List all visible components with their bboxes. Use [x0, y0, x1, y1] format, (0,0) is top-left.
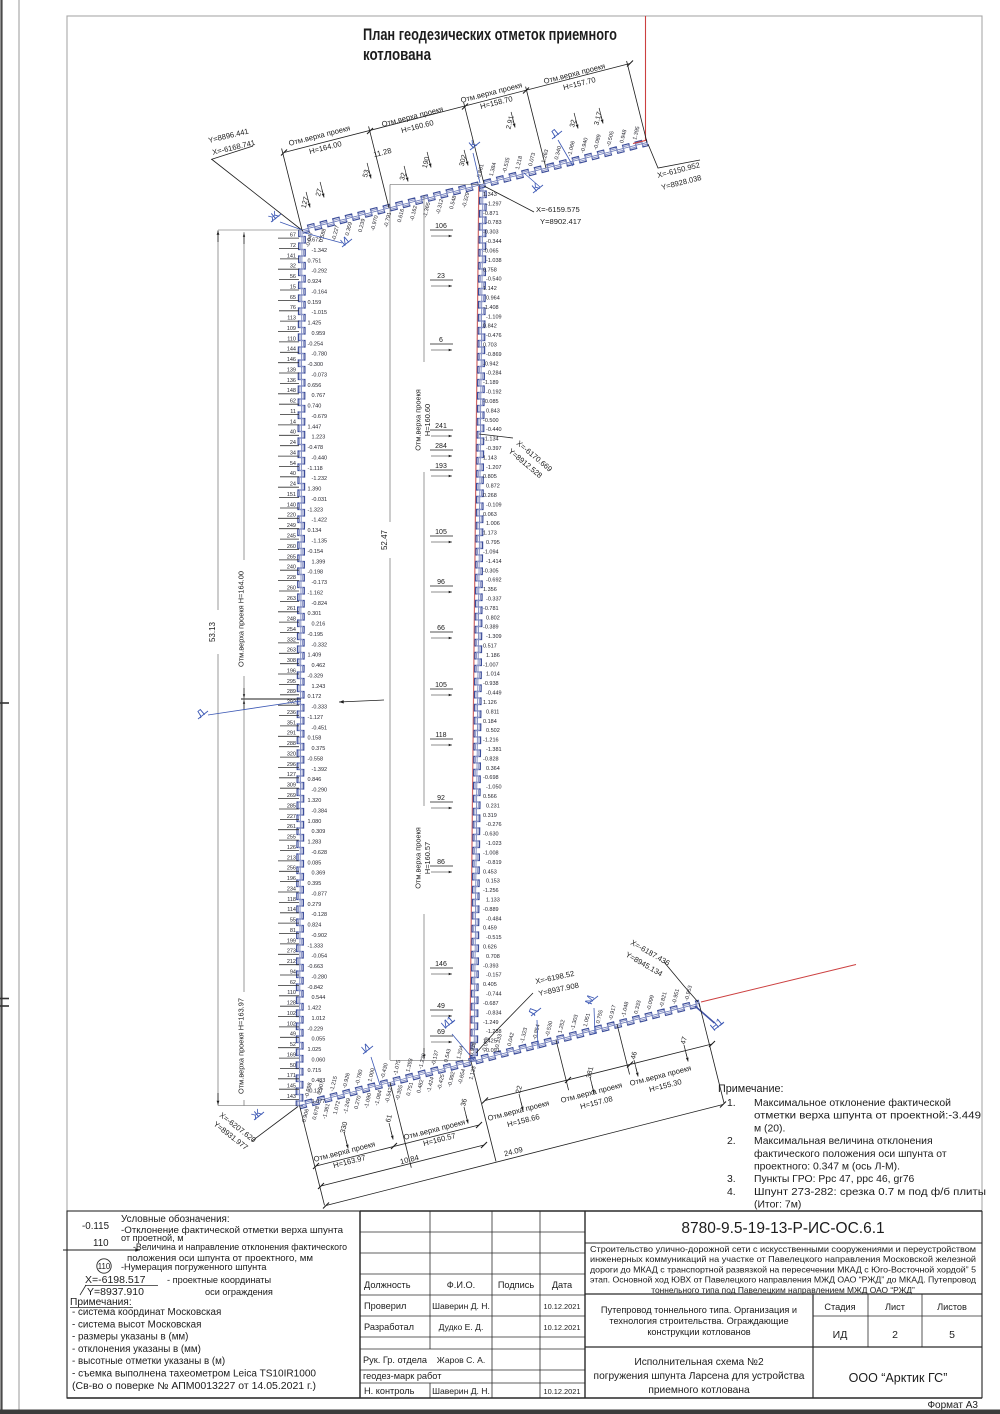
- svg-text:конструкции котлованов: конструкции котлованов: [647, 1327, 750, 1337]
- svg-text:-0.337: -0.337: [486, 597, 502, 603]
- svg-text:Условные обозначения:: Условные обозначения:: [121, 1214, 230, 1225]
- svg-text:-1.249: -1.249: [483, 1020, 499, 1026]
- svg-text:0.309: 0.309: [312, 829, 326, 835]
- svg-text:213: 213: [287, 855, 296, 861]
- svg-text:285: 285: [287, 803, 296, 809]
- svg-text:289: 289: [287, 689, 296, 695]
- svg-text:228: 228: [287, 575, 296, 581]
- svg-text:65: 65: [290, 295, 296, 301]
- svg-text:-0.065: -0.065: [483, 248, 499, 254]
- svg-text:10.12.2021: 10.12.2021: [544, 1323, 581, 1332]
- svg-text:0.375: 0.375: [312, 746, 326, 752]
- svg-text:ИД: ИД: [833, 1329, 848, 1341]
- svg-text:отметки верха шпунта от проект: отметки верха шпунта от проектной:-3.449: [754, 1111, 981, 1122]
- svg-text:140: 140: [287, 502, 296, 508]
- svg-text:План геодезических отметок при: План геодезических отметок приемного: [363, 26, 617, 44]
- svg-text:255: 255: [287, 835, 296, 841]
- svg-text:0.134: 0.134: [308, 528, 322, 534]
- svg-text:2.: 2.: [727, 1136, 736, 1147]
- svg-text:-0.942: -0.942: [483, 361, 499, 367]
- svg-text:0.544: 0.544: [312, 995, 326, 1001]
- svg-text:-0.478: -0.478: [308, 445, 324, 451]
- svg-text:145: 145: [287, 1084, 296, 1090]
- svg-text:-0.303: -0.303: [483, 230, 499, 236]
- svg-text:0.811: 0.811: [486, 709, 499, 715]
- svg-text:0.703: 0.703: [483, 343, 497, 349]
- svg-text:1.143: 1.143: [483, 455, 497, 461]
- svg-text:-1.297: -1.297: [486, 201, 502, 207]
- svg-text:-1.256: -1.256: [483, 888, 499, 894]
- svg-text:86: 86: [437, 859, 445, 866]
- svg-text:-1.232: -1.232: [312, 476, 328, 482]
- svg-text:-0.329: -0.329: [308, 673, 324, 679]
- svg-text:1.173: 1.173: [483, 531, 497, 537]
- svg-text:114: 114: [287, 907, 296, 913]
- svg-text:-1.008: -1.008: [483, 851, 499, 857]
- svg-text:1.390: 1.390: [308, 487, 322, 493]
- svg-text:0.846: 0.846: [308, 777, 322, 783]
- svg-text:0.453: 0.453: [483, 869, 497, 875]
- svg-text:-0.333: -0.333: [312, 705, 328, 711]
- svg-text:Максимальное отклонение фактич: Максимальное отклонение фактической: [754, 1097, 951, 1109]
- svg-text:-0.500: -0.500: [483, 418, 499, 424]
- svg-text:- размеры указаны в (мм): - размеры указаны в (мм): [72, 1332, 188, 1343]
- svg-text:53.13: 53.13: [208, 621, 217, 642]
- svg-text:109: 109: [287, 326, 296, 332]
- svg-text:-0.389: -0.389: [483, 625, 499, 631]
- svg-text:260: 260: [287, 544, 296, 550]
- svg-text:-0.195: -0.195: [308, 632, 324, 638]
- svg-text:-1.189: -1.189: [483, 380, 499, 386]
- svg-text:-1.094: -1.094: [483, 550, 499, 556]
- svg-text:фактического положения оси шпу: фактического положения оси шпунта от: [754, 1148, 947, 1160]
- svg-text:Дата: Дата: [552, 1280, 573, 1290]
- svg-text:-1.342: -1.342: [312, 248, 328, 254]
- svg-text:295: 295: [287, 679, 296, 685]
- svg-text:-1.050: -1.050: [486, 785, 502, 791]
- svg-text:погружения шпунта Ларсена для: погружения шпунта Ларсена для устройства: [594, 1371, 805, 1382]
- svg-text:Дудко Е. Д.: Дудко Е. Д.: [439, 1322, 484, 1332]
- svg-text:69: 69: [437, 1029, 445, 1036]
- svg-text:1.343: 1.343: [483, 192, 497, 198]
- svg-text:-0.393: -0.393: [483, 963, 499, 969]
- svg-text:-0.902: -0.902: [312, 933, 328, 939]
- svg-text:0.708: 0.708: [486, 954, 500, 960]
- svg-text:0.824: 0.824: [308, 923, 322, 929]
- svg-text:291: 291: [287, 731, 296, 737]
- svg-text:Путепровод тоннельного типа. О: Путепровод тоннельного типа. Организация…: [601, 1305, 797, 1315]
- svg-text:Жаров С. А.: Жаров С. А.: [437, 1355, 485, 1365]
- svg-text:169: 169: [287, 1053, 296, 1059]
- svg-text:-0.663: -0.663: [308, 964, 324, 970]
- svg-text:56: 56: [290, 274, 296, 280]
- svg-text:351: 351: [287, 720, 296, 726]
- svg-text:-0.938: -0.938: [483, 681, 499, 687]
- svg-text:148: 148: [287, 388, 296, 394]
- svg-text:-0.157: -0.157: [486, 973, 502, 979]
- svg-text:Стадия: Стадия: [824, 1302, 855, 1312]
- svg-text:-1.414: -1.414: [486, 559, 502, 565]
- svg-text:-0.085: -0.085: [483, 399, 499, 405]
- svg-text:-0.154: -0.154: [308, 549, 324, 555]
- svg-text:0.795: 0.795: [486, 540, 500, 546]
- svg-text:0.767: 0.767: [312, 393, 326, 399]
- svg-text:-0.073: -0.073: [312, 372, 328, 378]
- svg-text:- съемка выполнена тахеометром: - съемка выполнена тахеометром Leica TS1…: [72, 1369, 317, 1380]
- svg-text:Отм.верха проекя Н=164.00: Отм.верха проекя Н=164.00: [237, 571, 246, 667]
- svg-text:110: 110: [93, 1238, 109, 1249]
- svg-text:Ф.И.О.: Ф.И.О.: [447, 1280, 475, 1290]
- svg-text:10.12.2021: 10.12.2021: [544, 1387, 581, 1396]
- svg-text:-0.109: -0.109: [486, 502, 502, 508]
- svg-text:Строительство улично-дорожной: Строительство улично-дорожной сети с иск…: [590, 1244, 976, 1254]
- svg-text:Разработал: Разработал: [364, 1322, 414, 1332]
- svg-text:-0.781: -0.781: [483, 606, 499, 612]
- svg-text:0.517: 0.517: [483, 644, 497, 650]
- svg-text:-0.115: -0.115: [82, 1221, 110, 1232]
- svg-text:-1.007: -1.007: [483, 662, 499, 668]
- svg-text:127: 127: [287, 772, 296, 778]
- svg-text:249: 249: [287, 523, 296, 529]
- svg-text:0.462: 0.462: [312, 663, 326, 669]
- svg-text:-0.173: -0.173: [312, 580, 328, 586]
- svg-text:1.399: 1.399: [312, 559, 326, 565]
- svg-text:-0.834: -0.834: [486, 1010, 502, 1016]
- svg-text:-0.128: -0.128: [312, 912, 328, 918]
- svg-text:332: 332: [287, 637, 296, 643]
- svg-text:дороги до МКАД с транспортной: дороги до МКАД с транспортной развязкой …: [590, 1264, 976, 1274]
- svg-text:-0.397: -0.397: [486, 446, 502, 452]
- svg-text:1.025: 1.025: [308, 1047, 322, 1053]
- svg-text:-1.392: -1.392: [312, 767, 328, 773]
- svg-text:-0.276: -0.276: [486, 822, 502, 828]
- svg-text:-1.109: -1.109: [486, 314, 502, 320]
- svg-text:2: 2: [892, 1329, 898, 1341]
- svg-text:118: 118: [435, 732, 446, 739]
- svg-text:1.223: 1.223: [312, 435, 326, 441]
- svg-text:-0.440: -0.440: [486, 427, 502, 433]
- svg-text:146: 146: [435, 961, 447, 968]
- svg-text:Формат А3: Формат А3: [927, 1400, 978, 1411]
- svg-text:-0.842: -0.842: [308, 985, 324, 991]
- svg-text:261: 261: [287, 824, 296, 830]
- svg-text:0.740: 0.740: [308, 404, 322, 410]
- svg-text:0.369: 0.369: [312, 871, 326, 877]
- svg-text:-0.290: -0.290: [312, 788, 328, 794]
- svg-text:-0.280: -0.280: [312, 974, 328, 980]
- svg-text:284: 284: [435, 443, 447, 450]
- svg-text:254: 254: [287, 627, 296, 633]
- svg-text:Н. контроль: Н. контроль: [364, 1386, 415, 1396]
- svg-text:-0.628: -0.628: [312, 850, 328, 856]
- svg-text:1.014: 1.014: [486, 672, 500, 678]
- svg-text:143: 143: [287, 1094, 296, 1100]
- svg-text:0.964: 0.964: [486, 296, 500, 302]
- svg-text:-0.744: -0.744: [486, 992, 502, 998]
- svg-text:128: 128: [287, 1001, 296, 1007]
- svg-text:0.843: 0.843: [486, 408, 500, 414]
- svg-text:8780-9.5-19-13-Р-ИС-ОС.6.1: 8780-9.5-19-13-Р-ИС-ОС.6.1: [681, 1220, 884, 1237]
- svg-text:113: 113: [287, 316, 296, 322]
- svg-text:оси ограждения: оси ограждения: [205, 1287, 273, 1297]
- svg-text:196: 196: [287, 668, 296, 674]
- svg-text:0.405: 0.405: [483, 982, 497, 988]
- svg-text:Y=8902.417: Y=8902.417: [540, 217, 581, 226]
- svg-text:(Св-во о поверке № АПМ0013227: (Св-во о поверке № АПМ0013227 от 14.05.2…: [72, 1381, 316, 1392]
- svg-text:Шаверин Д. Н.: Шаверин Д. Н.: [432, 1301, 490, 1311]
- svg-text:5: 5: [949, 1329, 955, 1341]
- svg-text:263: 263: [287, 648, 296, 654]
- svg-text:92: 92: [437, 795, 445, 802]
- svg-text:-1.309: -1.309: [486, 634, 502, 640]
- svg-text:1.447: 1.447: [308, 424, 322, 430]
- svg-text:0.872: 0.872: [486, 484, 500, 490]
- svg-text:-1.135: -1.135: [312, 539, 328, 545]
- svg-text:3.: 3.: [727, 1174, 736, 1185]
- svg-text:-0.869: -0.869: [486, 352, 502, 358]
- svg-text:0.364: 0.364: [486, 766, 500, 772]
- svg-text:0.279: 0.279: [308, 902, 322, 908]
- svg-text:-1.207: -1.207: [486, 465, 502, 471]
- svg-text:62: 62: [290, 980, 296, 986]
- svg-text:-0.344: -0.344: [486, 239, 502, 245]
- svg-text:технология строительства. Огра: технология строительства. Ограждающие: [609, 1316, 788, 1326]
- svg-text:1.080: 1.080: [308, 819, 322, 825]
- svg-text:-1.162: -1.162: [308, 590, 324, 596]
- svg-text:96: 96: [437, 579, 445, 586]
- svg-text:0.159: 0.159: [308, 300, 322, 306]
- svg-text:геодез-марк работ: геодез-марк работ: [363, 1371, 442, 1381]
- svg-text:196: 196: [287, 876, 296, 882]
- svg-text:-0.440: -0.440: [312, 456, 328, 462]
- svg-text:-0.229: -0.229: [308, 1026, 324, 1032]
- svg-text:0.395: 0.395: [308, 881, 322, 887]
- svg-text:0.060: 0.060: [312, 1058, 326, 1064]
- svg-text:0.085: 0.085: [308, 860, 322, 866]
- svg-text:0.566: 0.566: [483, 794, 497, 800]
- svg-text:этап. Основной ход ЮВХ от Паве: этап. Основной ход ЮВХ от Павелецкого на…: [590, 1275, 976, 1285]
- svg-text:49: 49: [437, 1003, 445, 1010]
- svg-text:40: 40: [290, 471, 296, 477]
- svg-text:245: 245: [287, 534, 296, 540]
- svg-text:Проверил: Проверил: [364, 1301, 406, 1311]
- svg-text:Должность: Должность: [364, 1280, 411, 1290]
- svg-text:260: 260: [287, 585, 296, 591]
- svg-text:-0.828: -0.828: [483, 756, 499, 762]
- svg-text:-0.476: -0.476: [486, 333, 502, 339]
- svg-text:234: 234: [287, 886, 296, 892]
- svg-text:1.077: 1.077: [312, 1099, 326, 1105]
- svg-text:0.172: 0.172: [308, 694, 322, 700]
- svg-text:236: 236: [287, 710, 296, 716]
- svg-text:0.216: 0.216: [312, 622, 326, 628]
- svg-text:308: 308: [287, 658, 296, 664]
- svg-text:- отклонения указаны в (мм): - отклонения указаны в (мм): [72, 1344, 201, 1355]
- svg-text:-0.284: -0.284: [486, 371, 502, 377]
- svg-text:X=-6198.517: X=-6198.517: [85, 1274, 146, 1286]
- svg-text:52.47: 52.47: [380, 529, 389, 550]
- svg-text:проектного: 0.347 м (ось Л-М).: проектного: 0.347 м (ось Л-М).: [754, 1162, 900, 1173]
- svg-text:-0.198: -0.198: [308, 570, 324, 576]
- svg-text:199: 199: [287, 938, 296, 944]
- svg-text:265: 265: [287, 554, 296, 560]
- svg-text:0.802: 0.802: [486, 615, 500, 621]
- svg-text:212: 212: [287, 959, 296, 965]
- svg-text:1.012: 1.012: [312, 1016, 326, 1022]
- svg-text:0.842: 0.842: [483, 324, 497, 330]
- svg-text:220: 220: [287, 513, 296, 519]
- svg-text:-0.031: -0.031: [312, 497, 328, 503]
- svg-text:-1.023: -1.023: [486, 841, 502, 847]
- svg-text:-1.381: -1.381: [486, 747, 502, 753]
- svg-text:0.715: 0.715: [308, 1068, 322, 1074]
- svg-text:Отм.верха проекя: Отм.верха проекя: [414, 389, 423, 451]
- svg-text:261: 261: [287, 606, 296, 612]
- svg-text:0.268: 0.268: [483, 493, 497, 499]
- svg-text:0.626: 0.626: [483, 945, 497, 951]
- svg-text:1.422: 1.422: [308, 1006, 322, 1012]
- svg-text:273: 273: [287, 949, 296, 955]
- svg-text:296: 296: [287, 762, 296, 768]
- svg-text:Н=160.60: Н=160.60: [423, 404, 432, 436]
- svg-text:40: 40: [290, 430, 296, 436]
- svg-text:Шпунт 273-282: срезка 0.7 м по: Шпунт 273-282: срезка 0.7 м под ф/б плит…: [754, 1186, 986, 1198]
- svg-text:141: 141: [287, 253, 296, 259]
- svg-text:(Итог: 7м): (Итог: 7м): [754, 1200, 801, 1211]
- svg-text:-0.558: -0.558: [308, 757, 324, 763]
- svg-text:72: 72: [290, 243, 296, 249]
- svg-text:Отм.верха проекя Н=163.97: Отм.верха проекя Н=163.97: [237, 998, 246, 1094]
- svg-text:288: 288: [287, 741, 296, 747]
- svg-text:0.751: 0.751: [308, 258, 322, 264]
- svg-text:-0.630: -0.630: [483, 832, 499, 838]
- svg-text:Максимальная величина отклонен: Максимальная величина отклонения: [754, 1136, 933, 1147]
- svg-text:0.959: 0.959: [312, 331, 326, 337]
- svg-text:110: 110: [287, 990, 296, 996]
- svg-text:м (20).: м (20).: [754, 1123, 785, 1134]
- svg-text:-0.164: -0.164: [312, 289, 328, 295]
- svg-text:0.055: 0.055: [312, 1037, 326, 1043]
- svg-text:110: 110: [98, 1262, 111, 1271]
- svg-text:-0.254: -0.254: [308, 341, 324, 347]
- svg-text:-0.698: -0.698: [483, 775, 499, 781]
- svg-text:227: 227: [287, 814, 296, 820]
- svg-text:-0.300: -0.300: [308, 362, 324, 368]
- svg-text:-1.422: -1.422: [312, 518, 328, 524]
- svg-text:-0.871: -0.871: [483, 211, 499, 217]
- svg-text:0.063: 0.063: [483, 512, 497, 518]
- svg-text:-0.780: -0.780: [312, 352, 328, 358]
- svg-text:-0.692: -0.692: [486, 578, 502, 584]
- svg-text:Исполнительная схема №2: Исполнительная схема №2: [634, 1357, 764, 1368]
- svg-text:76: 76: [290, 305, 296, 311]
- svg-text:-0.877: -0.877: [312, 891, 328, 897]
- svg-text:151: 151: [287, 492, 296, 498]
- svg-text:-0.540: -0.540: [486, 277, 502, 283]
- svg-text:0.319: 0.319: [483, 813, 497, 819]
- svg-text:110: 110: [287, 336, 296, 342]
- svg-text:котлована: котлована: [363, 46, 432, 64]
- svg-text:263: 263: [287, 596, 296, 602]
- svg-text:Подпись: Подпись: [498, 1280, 535, 1290]
- svg-text:15: 15: [290, 284, 296, 290]
- svg-text:0.805: 0.805: [483, 474, 497, 480]
- svg-text:-0.687: -0.687: [483, 1001, 499, 1007]
- svg-text:136: 136: [287, 378, 296, 384]
- svg-text:102: 102: [287, 1011, 296, 1017]
- svg-text:-1.015: -1.015: [312, 310, 328, 316]
- svg-text:269: 269: [287, 793, 296, 799]
- svg-text:Шаверин Д. Н.: Шаверин Д. Н.: [432, 1386, 490, 1396]
- svg-text:-0.824: -0.824: [312, 601, 328, 607]
- svg-text:ООО “Арктик ГС”: ООО “Арктик ГС”: [849, 1371, 948, 1385]
- svg-text:94: 94: [290, 969, 296, 975]
- svg-text:32: 32: [290, 264, 296, 270]
- svg-text:1.320: 1.320: [308, 798, 322, 804]
- svg-text:- система координат Московская: - система координат Московская: [72, 1307, 221, 1318]
- svg-text:Пункты ГРО: Ррс 47, ррс 46, gr: Пункты ГРО: Ррс 47, ррс 46, gr76: [754, 1174, 914, 1185]
- svg-text:-1.118: -1.118: [308, 466, 323, 472]
- svg-text:-1.333: -1.333: [308, 943, 324, 949]
- svg-text:0.158: 0.158: [308, 736, 322, 742]
- svg-text:54: 54: [290, 461, 296, 467]
- svg-text:-0.384: -0.384: [312, 808, 328, 814]
- svg-text:66: 66: [437, 625, 445, 632]
- svg-text:0.924: 0.924: [308, 279, 322, 285]
- svg-text:256: 256: [287, 866, 296, 872]
- svg-text:-0.305: -0.305: [483, 568, 499, 574]
- svg-text:-0.679: -0.679: [312, 414, 328, 420]
- svg-text:81: 81: [290, 928, 296, 934]
- svg-text:инженерных коммуникаций на уча: инженерных коммуникаций на участке от Па…: [590, 1254, 976, 1264]
- svg-text:0.153: 0.153: [486, 879, 500, 885]
- svg-text:- проектные координаты: - проектные координаты: [167, 1275, 271, 1285]
- svg-text:-0.054: -0.054: [312, 954, 328, 960]
- svg-text:118: 118: [287, 897, 296, 903]
- svg-text:23: 23: [437, 273, 445, 280]
- svg-text:тоннельного типа под Павелецки: тоннельного типа под Павелецким направле…: [651, 1285, 915, 1295]
- svg-text:-Величина и направление отклон: -Величина и направление отклонения факти…: [133, 1242, 347, 1252]
- svg-text:144: 144: [287, 347, 296, 353]
- svg-text:-0.449: -0.449: [486, 691, 502, 697]
- svg-text:67: 67: [290, 233, 296, 239]
- svg-text:1.006: 1.006: [486, 521, 500, 527]
- svg-text:50: 50: [290, 1063, 296, 1069]
- svg-text:-0.515: -0.515: [486, 935, 502, 941]
- svg-text:-0.484: -0.484: [486, 916, 502, 922]
- svg-text:6: 6: [439, 337, 443, 344]
- svg-text:Листов: Листов: [937, 1302, 967, 1312]
- svg-text:171: 171: [287, 1073, 296, 1079]
- svg-text:105: 105: [435, 529, 447, 536]
- svg-text:0.459: 0.459: [483, 926, 497, 932]
- svg-text:14: 14: [290, 419, 296, 425]
- svg-text:1.283: 1.283: [308, 840, 322, 846]
- svg-text:1.133: 1.133: [486, 898, 500, 904]
- svg-text:309: 309: [287, 783, 296, 789]
- svg-text:Лист: Лист: [885, 1302, 906, 1312]
- svg-text:Н=160.57: Н=160.57: [423, 842, 432, 874]
- svg-text:Отм.верха проекя: Отм.верха проекя: [414, 827, 423, 889]
- svg-text:-0.451: -0.451: [312, 725, 328, 731]
- svg-text:-Нумерация погруженного шпунта: -Нумерация погруженного шпунта: [121, 1262, 267, 1272]
- svg-text:-0.819: -0.819: [486, 860, 502, 866]
- svg-text:193: 193: [435, 463, 447, 470]
- svg-text:-0.332: -0.332: [312, 642, 328, 648]
- svg-text:1.243: 1.243: [312, 684, 326, 690]
- svg-text:1.126: 1.126: [483, 700, 497, 706]
- svg-text:62: 62: [290, 399, 296, 405]
